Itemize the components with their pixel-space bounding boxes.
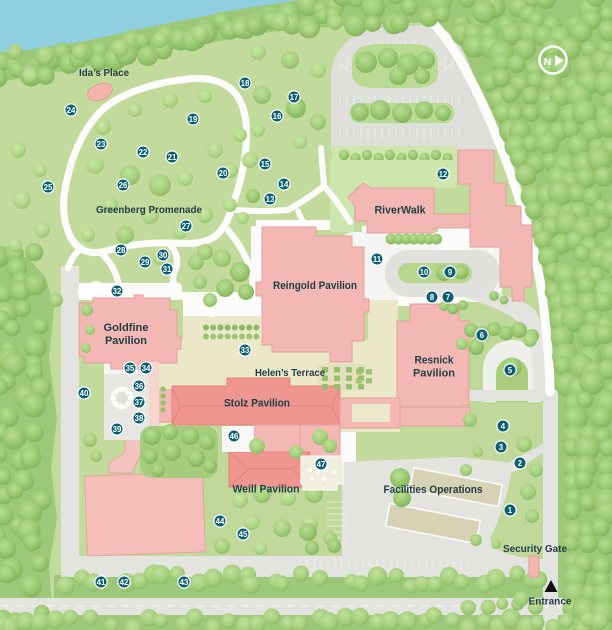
svg-text:Security Gate: Security Gate [503,543,567,555]
svg-text:Facilities Operations: Facilities Operations [384,484,483,496]
svg-text:36: 36 [135,382,144,391]
svg-text:44: 44 [216,517,225,526]
svg-text:Ida’s Place: Ida’s Place [79,67,129,79]
svg-text:Resnick: Resnick [415,355,455,367]
svg-text:33: 33 [241,346,250,355]
svg-text:38: 38 [135,414,144,423]
svg-text:29: 29 [141,258,150,267]
svg-text:13: 13 [266,195,275,204]
svg-text:41: 41 [97,578,106,587]
svg-text:23: 23 [97,140,106,149]
svg-text:35: 35 [126,364,135,373]
svg-text:Pavilion: Pavilion [105,335,147,347]
svg-text:7: 7 [446,293,451,302]
svg-text:42: 42 [120,578,129,587]
svg-text:31: 31 [163,265,172,274]
svg-text:21: 21 [168,153,177,162]
svg-text:27: 27 [182,222,191,231]
svg-text:26: 26 [119,181,128,190]
svg-text:40: 40 [80,389,89,398]
svg-text:30: 30 [159,251,168,260]
svg-text:Greenberg Promenade: Greenberg Promenade [96,204,202,216]
svg-text:22: 22 [139,148,148,157]
svg-text:46: 46 [230,432,239,441]
svg-text:RiverWalk: RiverWalk [375,205,427,217]
svg-text:Pavilion: Pavilion [413,368,455,380]
svg-text:19: 19 [189,115,198,124]
svg-text:10: 10 [420,268,429,277]
svg-text:43: 43 [180,578,189,587]
svg-text:14: 14 [280,180,289,189]
svg-text:24: 24 [67,106,76,115]
svg-text:Goldfine: Goldfine [104,322,149,334]
svg-text:1: 1 [508,506,513,515]
svg-text:32: 32 [113,287,122,296]
svg-text:Weill Pavilion: Weill Pavilion [233,484,300,496]
svg-text:20: 20 [219,169,228,178]
svg-text:Entrance: Entrance [529,596,572,608]
svg-text:8: 8 [430,293,435,302]
svg-text:Stolz Pavilion: Stolz Pavilion [224,398,290,410]
svg-text:37: 37 [135,398,144,407]
svg-text:18: 18 [241,79,250,88]
svg-text:16: 16 [273,112,282,121]
svg-text:39: 39 [113,425,122,434]
svg-text:45: 45 [239,530,248,539]
svg-text:Reingold Pavilion: Reingold Pavilion [273,280,357,292]
svg-text:6: 6 [480,331,485,340]
svg-text:28: 28 [117,246,126,255]
svg-text:N: N [544,56,552,68]
svg-text:47: 47 [317,460,326,469]
svg-text:9: 9 [448,268,453,277]
svg-text:12: 12 [439,170,448,179]
svg-text:17: 17 [290,93,299,102]
svg-text:3: 3 [499,443,504,452]
svg-text:25: 25 [44,183,53,192]
svg-text:5: 5 [508,366,513,375]
svg-text:15: 15 [261,160,270,169]
svg-text:Helen’s Terrace: Helen’s Terrace [255,367,325,379]
svg-text:11: 11 [373,255,382,264]
svg-text:2: 2 [518,459,523,468]
svg-text:4: 4 [501,422,506,431]
svg-text:34: 34 [142,364,151,373]
